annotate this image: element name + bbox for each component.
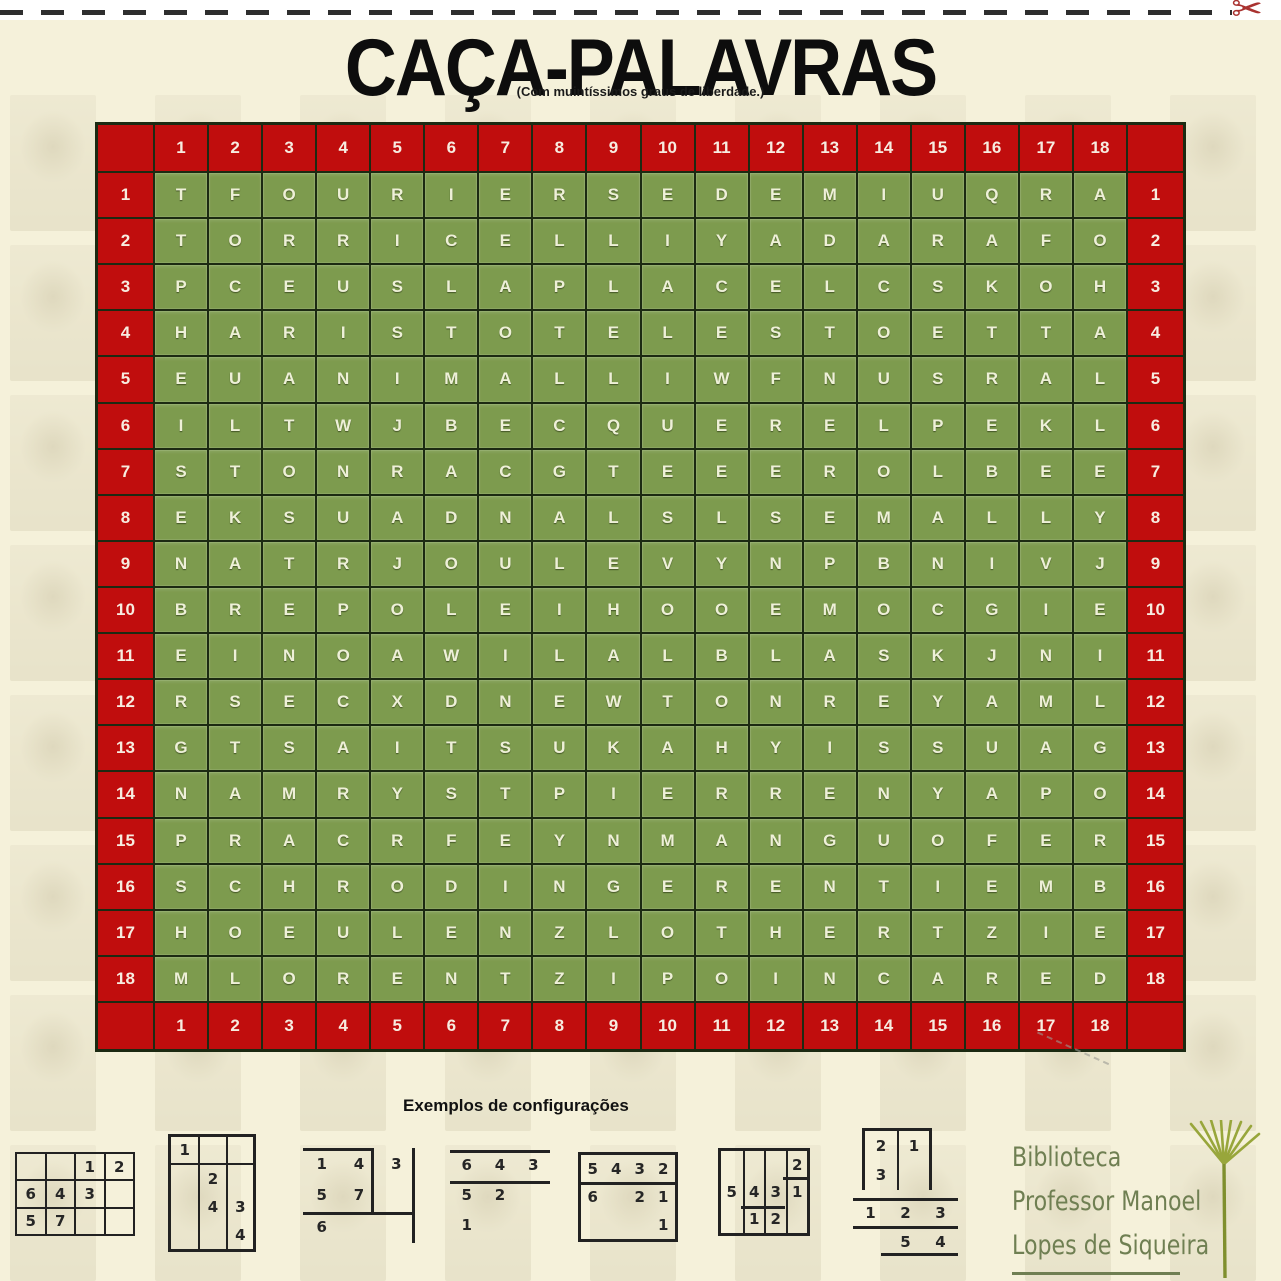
grid-cell[interactable]: N (479, 496, 531, 540)
grid-cell[interactable]: P (533, 265, 585, 309)
grid-cell[interactable]: L (1074, 680, 1126, 724)
grid-cell[interactable]: A (966, 219, 1018, 263)
grid-cell[interactable]: O (209, 911, 261, 955)
grid-cell[interactable]: R (317, 772, 369, 816)
grid-cell[interactable]: A (696, 819, 748, 863)
grid-cell[interactable]: R (858, 911, 910, 955)
grid-cell[interactable]: A (371, 496, 423, 540)
grid-cell[interactable]: R (750, 772, 802, 816)
grid-cell[interactable]: L (425, 265, 477, 309)
grid-cell[interactable]: U (317, 496, 369, 540)
grid-cell[interactable]: D (425, 496, 477, 540)
grid-cell[interactable]: R (263, 219, 315, 263)
grid-cell[interactable]: E (750, 865, 802, 909)
grid-cell[interactable]: R (371, 450, 423, 494)
grid-cell[interactable]: S (912, 726, 964, 770)
grid-cell[interactable]: R (371, 819, 423, 863)
grid-cell[interactable]: L (750, 634, 802, 678)
grid-cell[interactable]: A (371, 634, 423, 678)
grid-cell[interactable]: I (371, 219, 423, 263)
grid-cell[interactable]: C (696, 265, 748, 309)
grid-cell[interactable]: A (1020, 726, 1072, 770)
grid-cell[interactable]: A (587, 634, 639, 678)
grid-cell[interactable]: S (858, 634, 910, 678)
grid-cell[interactable]: E (1074, 450, 1126, 494)
grid-cell[interactable]: S (263, 726, 315, 770)
grid-cell[interactable]: H (263, 865, 315, 909)
grid-cell[interactable]: K (912, 634, 964, 678)
grid-cell[interactable]: S (912, 265, 964, 309)
grid-cell[interactable]: E (155, 634, 207, 678)
grid-cell[interactable]: L (804, 265, 856, 309)
grid-cell[interactable]: D (696, 173, 748, 217)
grid-cell[interactable]: T (912, 911, 964, 955)
grid-cell[interactable]: U (858, 819, 910, 863)
grid-cell[interactable]: D (804, 219, 856, 263)
grid-cell[interactable]: J (371, 542, 423, 586)
grid-cell[interactable]: A (209, 311, 261, 355)
grid-cell[interactable]: J (1074, 542, 1126, 586)
grid-cell[interactable]: P (155, 265, 207, 309)
grid-cell[interactable]: N (750, 819, 802, 863)
grid-cell[interactable]: A (479, 357, 531, 401)
grid-cell[interactable]: C (858, 957, 910, 1001)
grid-cell[interactable]: E (371, 957, 423, 1001)
grid-cell[interactable]: I (371, 357, 423, 401)
grid-cell[interactable]: L (912, 450, 964, 494)
grid-cell[interactable]: Z (533, 957, 585, 1001)
grid-cell[interactable]: Y (912, 680, 964, 724)
grid-cell[interactable]: P (912, 404, 964, 448)
grid-cell[interactable]: H (750, 911, 802, 955)
grid-cell[interactable]: R (966, 957, 1018, 1001)
grid-cell[interactable]: G (587, 865, 639, 909)
grid-cell[interactable]: K (587, 726, 639, 770)
grid-cell[interactable]: E (642, 173, 694, 217)
grid-cell[interactable]: C (479, 450, 531, 494)
grid-cell[interactable]: T (479, 957, 531, 1001)
grid-cell[interactable]: B (966, 450, 1018, 494)
grid-cell[interactable]: E (533, 680, 585, 724)
grid-cell[interactable]: R (317, 219, 369, 263)
grid-cell[interactable]: I (587, 772, 639, 816)
grid-cell[interactable]: N (912, 542, 964, 586)
grid-cell[interactable]: B (858, 542, 910, 586)
grid-cell[interactable]: W (317, 404, 369, 448)
grid-cell[interactable]: N (425, 957, 477, 1001)
grid-cell[interactable]: C (317, 819, 369, 863)
grid-cell[interactable]: P (1020, 772, 1072, 816)
grid-cell[interactable]: R (804, 450, 856, 494)
grid-cell[interactable]: P (155, 819, 207, 863)
grid-cell[interactable]: L (587, 496, 639, 540)
grid-cell[interactable]: R (1020, 173, 1072, 217)
grid-cell[interactable]: R (696, 772, 748, 816)
grid-cell[interactable]: O (912, 819, 964, 863)
grid-cell[interactable]: R (696, 865, 748, 909)
grid-cell[interactable]: T (263, 404, 315, 448)
grid-cell[interactable]: S (642, 496, 694, 540)
grid-cell[interactable]: L (533, 542, 585, 586)
grid-cell[interactable]: T (858, 865, 910, 909)
grid-cell[interactable]: E (642, 865, 694, 909)
grid-cell[interactable]: O (1074, 219, 1126, 263)
grid-cell[interactable]: U (479, 542, 531, 586)
grid-cell[interactable]: F (209, 173, 261, 217)
grid-cell[interactable]: A (317, 726, 369, 770)
grid-cell[interactable]: O (642, 911, 694, 955)
grid-cell[interactable]: R (263, 311, 315, 355)
grid-cell[interactable]: O (696, 957, 748, 1001)
grid-cell[interactable]: N (858, 772, 910, 816)
grid-cell[interactable]: L (587, 219, 639, 263)
grid-cell[interactable]: F (425, 819, 477, 863)
grid-cell[interactable]: G (533, 450, 585, 494)
grid-cell[interactable]: R (912, 219, 964, 263)
grid-cell[interactable]: M (1020, 680, 1072, 724)
grid-cell[interactable]: C (209, 865, 261, 909)
grid-cell[interactable]: S (371, 265, 423, 309)
grid-cell[interactable]: K (966, 265, 1018, 309)
grid-cell[interactable]: L (587, 357, 639, 401)
grid-cell[interactable]: L (209, 957, 261, 1001)
grid-cell[interactable]: R (317, 957, 369, 1001)
grid-cell[interactable]: E (479, 219, 531, 263)
grid-cell[interactable]: N (479, 911, 531, 955)
grid-cell[interactable]: U (317, 911, 369, 955)
grid-cell[interactable]: L (209, 404, 261, 448)
grid-cell[interactable]: O (858, 311, 910, 355)
grid-cell[interactable]: E (155, 357, 207, 401)
grid-cell[interactable]: H (1074, 265, 1126, 309)
grid-cell[interactable]: B (425, 404, 477, 448)
grid-cell[interactable]: A (804, 634, 856, 678)
grid-cell[interactable]: K (1020, 404, 1072, 448)
grid-cell[interactable]: K (209, 496, 261, 540)
grid-cell[interactable]: I (858, 173, 910, 217)
grid-cell[interactable]: O (696, 588, 748, 632)
grid-cell[interactable]: M (642, 819, 694, 863)
grid-cell[interactable]: W (696, 357, 748, 401)
grid-cell[interactable]: N (804, 357, 856, 401)
grid-cell[interactable]: O (425, 542, 477, 586)
grid-cell[interactable]: D (425, 865, 477, 909)
grid-cell[interactable]: P (804, 542, 856, 586)
grid-cell[interactable]: I (371, 726, 423, 770)
grid-cell[interactable]: I (1074, 634, 1126, 678)
grid-cell[interactable]: B (1074, 865, 1126, 909)
grid-cell[interactable]: E (263, 588, 315, 632)
grid-cell[interactable]: Y (696, 542, 748, 586)
grid-cell[interactable]: S (858, 726, 910, 770)
grid-cell[interactable]: G (155, 726, 207, 770)
grid-cell[interactable]: H (155, 311, 207, 355)
grid-cell[interactable]: O (209, 219, 261, 263)
grid-cell[interactable]: C (533, 404, 585, 448)
grid-cell[interactable]: E (696, 450, 748, 494)
grid-cell[interactable]: I (479, 865, 531, 909)
grid-cell[interactable]: E (1020, 819, 1072, 863)
grid-cell[interactable]: A (263, 819, 315, 863)
grid-cell[interactable]: L (587, 911, 639, 955)
grid-cell[interactable]: T (696, 911, 748, 955)
grid-cell[interactable]: M (155, 957, 207, 1001)
grid-cell[interactable]: A (1074, 311, 1126, 355)
grid-cell[interactable]: R (804, 680, 856, 724)
grid-cell[interactable]: I (642, 357, 694, 401)
grid-cell[interactable]: E (858, 680, 910, 724)
grid-cell[interactable]: N (263, 634, 315, 678)
grid-cell[interactable]: O (858, 588, 910, 632)
grid-cell[interactable]: C (425, 219, 477, 263)
grid-cell[interactable]: N (317, 357, 369, 401)
grid-cell[interactable]: M (858, 496, 910, 540)
grid-cell[interactable]: F (1020, 219, 1072, 263)
grid-cell[interactable]: T (425, 726, 477, 770)
grid-cell[interactable]: N (155, 772, 207, 816)
grid-cell[interactable]: N (1020, 634, 1072, 678)
grid-cell[interactable]: S (587, 173, 639, 217)
grid-cell[interactable]: M (1020, 865, 1072, 909)
grid-cell[interactable]: E (263, 265, 315, 309)
grid-cell[interactable]: E (479, 819, 531, 863)
grid-cell[interactable]: U (858, 357, 910, 401)
grid-cell[interactable]: I (425, 173, 477, 217)
grid-cell[interactable]: L (533, 219, 585, 263)
grid-cell[interactable]: Z (966, 911, 1018, 955)
grid-cell[interactable]: A (966, 772, 1018, 816)
grid-cell[interactable]: L (425, 588, 477, 632)
grid-cell[interactable]: E (642, 772, 694, 816)
grid-cell[interactable]: N (479, 680, 531, 724)
grid-cell[interactable]: I (533, 588, 585, 632)
grid-cell[interactable]: N (804, 865, 856, 909)
grid-cell[interactable]: C (209, 265, 261, 309)
grid-cell[interactable]: T (804, 311, 856, 355)
grid-cell[interactable]: O (1020, 265, 1072, 309)
grid-cell[interactable]: F (750, 357, 802, 401)
grid-cell[interactable]: E (1020, 450, 1072, 494)
grid-cell[interactable]: L (642, 311, 694, 355)
grid-cell[interactable]: A (479, 265, 531, 309)
grid-cell[interactable]: E (804, 772, 856, 816)
grid-cell[interactable]: W (587, 680, 639, 724)
grid-cell[interactable]: F (966, 819, 1018, 863)
grid-cell[interactable]: T (155, 173, 207, 217)
grid-cell[interactable]: L (858, 404, 910, 448)
grid-cell[interactable]: A (912, 957, 964, 1001)
grid-cell[interactable]: O (263, 173, 315, 217)
grid-cell[interactable]: S (912, 357, 964, 401)
grid-cell[interactable]: A (1020, 357, 1072, 401)
grid-cell[interactable]: O (317, 634, 369, 678)
grid-cell[interactable]: B (155, 588, 207, 632)
grid-cell[interactable]: U (533, 726, 585, 770)
grid-cell[interactable]: A (750, 219, 802, 263)
grid-cell[interactable]: S (155, 450, 207, 494)
grid-cell[interactable]: H (696, 726, 748, 770)
grid-cell[interactable]: G (966, 588, 1018, 632)
grid-cell[interactable]: O (263, 957, 315, 1001)
grid-cell[interactable]: Y (1074, 496, 1126, 540)
grid-cell[interactable]: W (425, 634, 477, 678)
grid-cell[interactable]: I (642, 219, 694, 263)
grid-cell[interactable]: E (263, 680, 315, 724)
grid-cell[interactable]: E (1020, 957, 1072, 1001)
grid-cell[interactable]: E (479, 404, 531, 448)
grid-cell[interactable]: S (371, 311, 423, 355)
grid-cell[interactable]: T (155, 219, 207, 263)
grid-cell[interactable]: N (804, 957, 856, 1001)
grid-cell[interactable]: I (1020, 588, 1072, 632)
grid-cell[interactable]: E (263, 911, 315, 955)
grid-cell[interactable]: A (1074, 173, 1126, 217)
grid-cell[interactable]: V (1020, 542, 1072, 586)
grid-cell[interactable]: Q (966, 173, 1018, 217)
grid-cell[interactable]: S (750, 311, 802, 355)
grid-cell[interactable]: R (155, 680, 207, 724)
grid-cell[interactable]: E (1074, 588, 1126, 632)
grid-cell[interactable]: I (750, 957, 802, 1001)
grid-cell[interactable]: A (209, 772, 261, 816)
grid-cell[interactable]: T (642, 680, 694, 724)
grid-cell[interactable]: S (209, 680, 261, 724)
grid-cell[interactable]: N (317, 450, 369, 494)
grid-cell[interactable]: E (804, 911, 856, 955)
grid-cell[interactable]: H (587, 588, 639, 632)
grid-cell[interactable]: L (371, 911, 423, 955)
grid-cell[interactable]: Y (533, 819, 585, 863)
grid-cell[interactable]: J (371, 404, 423, 448)
grid-cell[interactable]: E (966, 404, 1018, 448)
grid-cell[interactable]: Y (912, 772, 964, 816)
grid-cell[interactable]: E (425, 911, 477, 955)
grid-cell[interactable]: L (696, 496, 748, 540)
grid-cell[interactable]: R (209, 588, 261, 632)
grid-cell[interactable]: L (1074, 404, 1126, 448)
grid-cell[interactable]: R (209, 819, 261, 863)
grid-cell[interactable]: U (912, 173, 964, 217)
grid-cell[interactable]: D (1074, 957, 1126, 1001)
grid-cell[interactable]: Z (533, 911, 585, 955)
grid-cell[interactable]: G (1074, 726, 1126, 770)
grid-cell[interactable]: N (155, 542, 207, 586)
grid-cell[interactable]: U (317, 173, 369, 217)
grid-cell[interactable]: T (533, 311, 585, 355)
grid-cell[interactable]: L (533, 357, 585, 401)
grid-cell[interactable]: E (642, 450, 694, 494)
grid-cell[interactable]: E (966, 865, 1018, 909)
grid-cell[interactable]: D (425, 680, 477, 724)
grid-cell[interactable]: L (1020, 496, 1072, 540)
grid-cell[interactable]: N (750, 542, 802, 586)
grid-cell[interactable]: M (263, 772, 315, 816)
grid-cell[interactable]: E (1074, 911, 1126, 955)
grid-cell[interactable]: V (642, 542, 694, 586)
grid-cell[interactable]: T (425, 311, 477, 355)
grid-cell[interactable]: S (155, 865, 207, 909)
grid-cell[interactable]: U (966, 726, 1018, 770)
grid-cell[interactable]: I (587, 957, 639, 1001)
grid-cell[interactable]: B (696, 634, 748, 678)
grid-cell[interactable]: M (804, 588, 856, 632)
grid-cell[interactable]: L (533, 634, 585, 678)
grid-cell[interactable]: T (587, 450, 639, 494)
grid-cell[interactable]: U (317, 265, 369, 309)
grid-cell[interactable]: G (804, 819, 856, 863)
grid-cell[interactable]: E (750, 450, 802, 494)
grid-cell[interactable]: O (371, 588, 423, 632)
grid-cell[interactable]: O (696, 680, 748, 724)
grid-cell[interactable]: L (966, 496, 1018, 540)
grid-cell[interactable]: I (804, 726, 856, 770)
grid-cell[interactable]: L (1074, 357, 1126, 401)
grid-cell[interactable]: R (750, 404, 802, 448)
grid-cell[interactable]: P (642, 957, 694, 1001)
grid-cell[interactable]: Q (587, 404, 639, 448)
grid-cell[interactable]: A (642, 265, 694, 309)
grid-cell[interactable]: O (858, 450, 910, 494)
grid-cell[interactable]: M (425, 357, 477, 401)
grid-cell[interactable]: A (533, 496, 585, 540)
grid-cell[interactable]: P (317, 588, 369, 632)
grid-cell[interactable]: L (642, 634, 694, 678)
grid-cell[interactable]: O (1074, 772, 1126, 816)
grid-cell[interactable]: E (479, 588, 531, 632)
grid-cell[interactable]: I (1020, 911, 1072, 955)
grid-cell[interactable]: R (533, 173, 585, 217)
grid-cell[interactable]: M (804, 173, 856, 217)
grid-cell[interactable]: S (263, 496, 315, 540)
grid-cell[interactable]: U (209, 357, 261, 401)
grid-cell[interactable]: A (642, 726, 694, 770)
grid-cell[interactable]: U (642, 404, 694, 448)
grid-cell[interactable]: E (750, 265, 802, 309)
grid-cell[interactable]: I (912, 865, 964, 909)
grid-cell[interactable]: A (858, 219, 910, 263)
grid-cell[interactable]: P (533, 772, 585, 816)
grid-cell[interactable]: E (696, 404, 748, 448)
grid-cell[interactable]: E (750, 173, 802, 217)
grid-cell[interactable]: A (966, 680, 1018, 724)
grid-cell[interactable]: Y (696, 219, 748, 263)
grid-cell[interactable]: L (587, 265, 639, 309)
grid-cell[interactable]: A (263, 357, 315, 401)
grid-cell[interactable]: E (155, 496, 207, 540)
grid-cell[interactable]: T (479, 772, 531, 816)
grid-cell[interactable]: E (479, 173, 531, 217)
grid-cell[interactable]: N (587, 819, 639, 863)
grid-cell[interactable]: O (263, 450, 315, 494)
grid-cell[interactable]: I (155, 404, 207, 448)
grid-cell[interactable]: A (425, 450, 477, 494)
grid-cell[interactable]: I (479, 634, 531, 678)
grid-cell[interactable]: I (317, 311, 369, 355)
grid-cell[interactable]: J (966, 634, 1018, 678)
grid-cell[interactable]: C (912, 588, 964, 632)
grid-cell[interactable]: S (750, 496, 802, 540)
grid-cell[interactable]: Y (750, 726, 802, 770)
grid-cell[interactable]: N (750, 680, 802, 724)
grid-cell[interactable]: T (209, 450, 261, 494)
grid-cell[interactable]: Y (371, 772, 423, 816)
grid-cell[interactable]: C (317, 680, 369, 724)
grid-cell[interactable]: R (966, 357, 1018, 401)
grid-cell[interactable]: E (804, 496, 856, 540)
grid-cell[interactable]: N (533, 865, 585, 909)
grid-cell[interactable]: T (263, 542, 315, 586)
grid-cell[interactable]: E (804, 404, 856, 448)
